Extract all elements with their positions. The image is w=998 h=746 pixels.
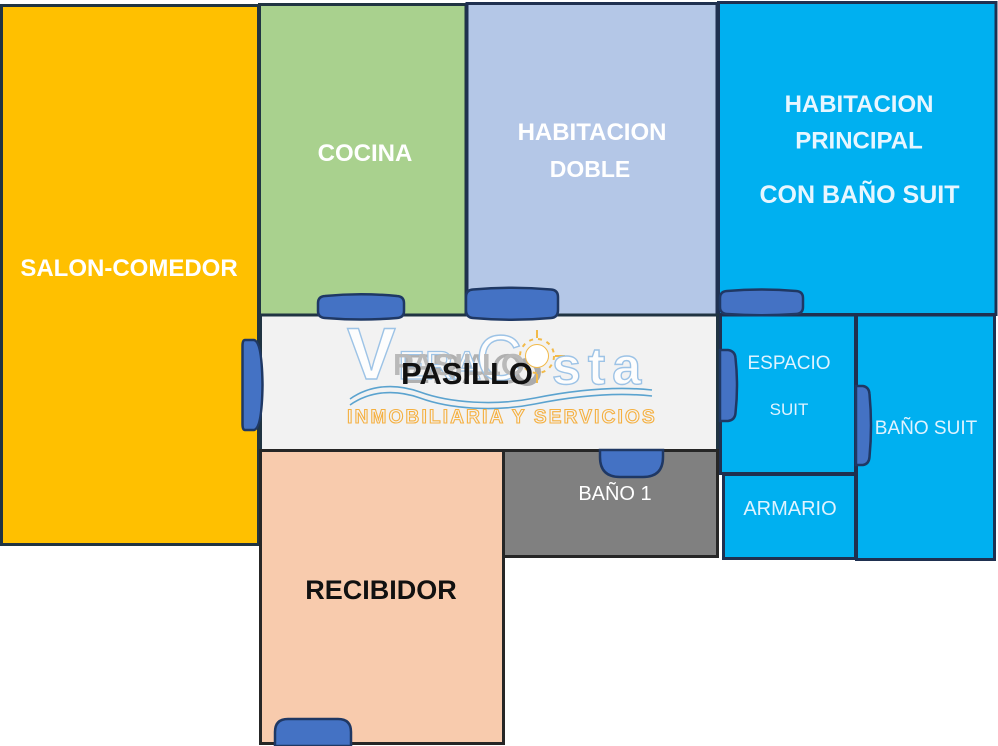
svg-text:SUIT: SUIT	[770, 400, 809, 419]
svg-text:DOBLE: DOBLE	[550, 156, 631, 182]
svg-text:SALON-COMEDOR: SALON-COMEDOR	[20, 255, 237, 282]
svg-text:BAÑO SUIT: BAÑO SUIT	[875, 417, 978, 439]
svg-text:HABITACION: HABITACION	[785, 91, 934, 118]
svg-text:BAÑO 1: BAÑO 1	[578, 481, 651, 505]
svg-text:V: V	[347, 314, 396, 395]
svg-text:HABITACION: HABITACION	[518, 119, 667, 146]
svg-text:sta: sta	[552, 338, 648, 396]
svg-text:RECIBIDOR: RECIBIDOR	[305, 575, 457, 605]
svg-text:PASILLO: PASILLO	[401, 356, 533, 391]
svg-text:CON BAÑO SUIT: CON BAÑO SUIT	[760, 179, 960, 209]
svg-text:COCINA: COCINA	[318, 140, 413, 167]
svg-text:ARMARIO: ARMARIO	[743, 498, 836, 520]
svg-text:INMOBILIARIA Y SERVICIOS: INMOBILIARIA Y SERVICIOS	[347, 407, 657, 428]
svg-text:ESPACIO: ESPACIO	[747, 353, 830, 374]
svg-text:PRINCIPAL: PRINCIPAL	[795, 128, 923, 155]
